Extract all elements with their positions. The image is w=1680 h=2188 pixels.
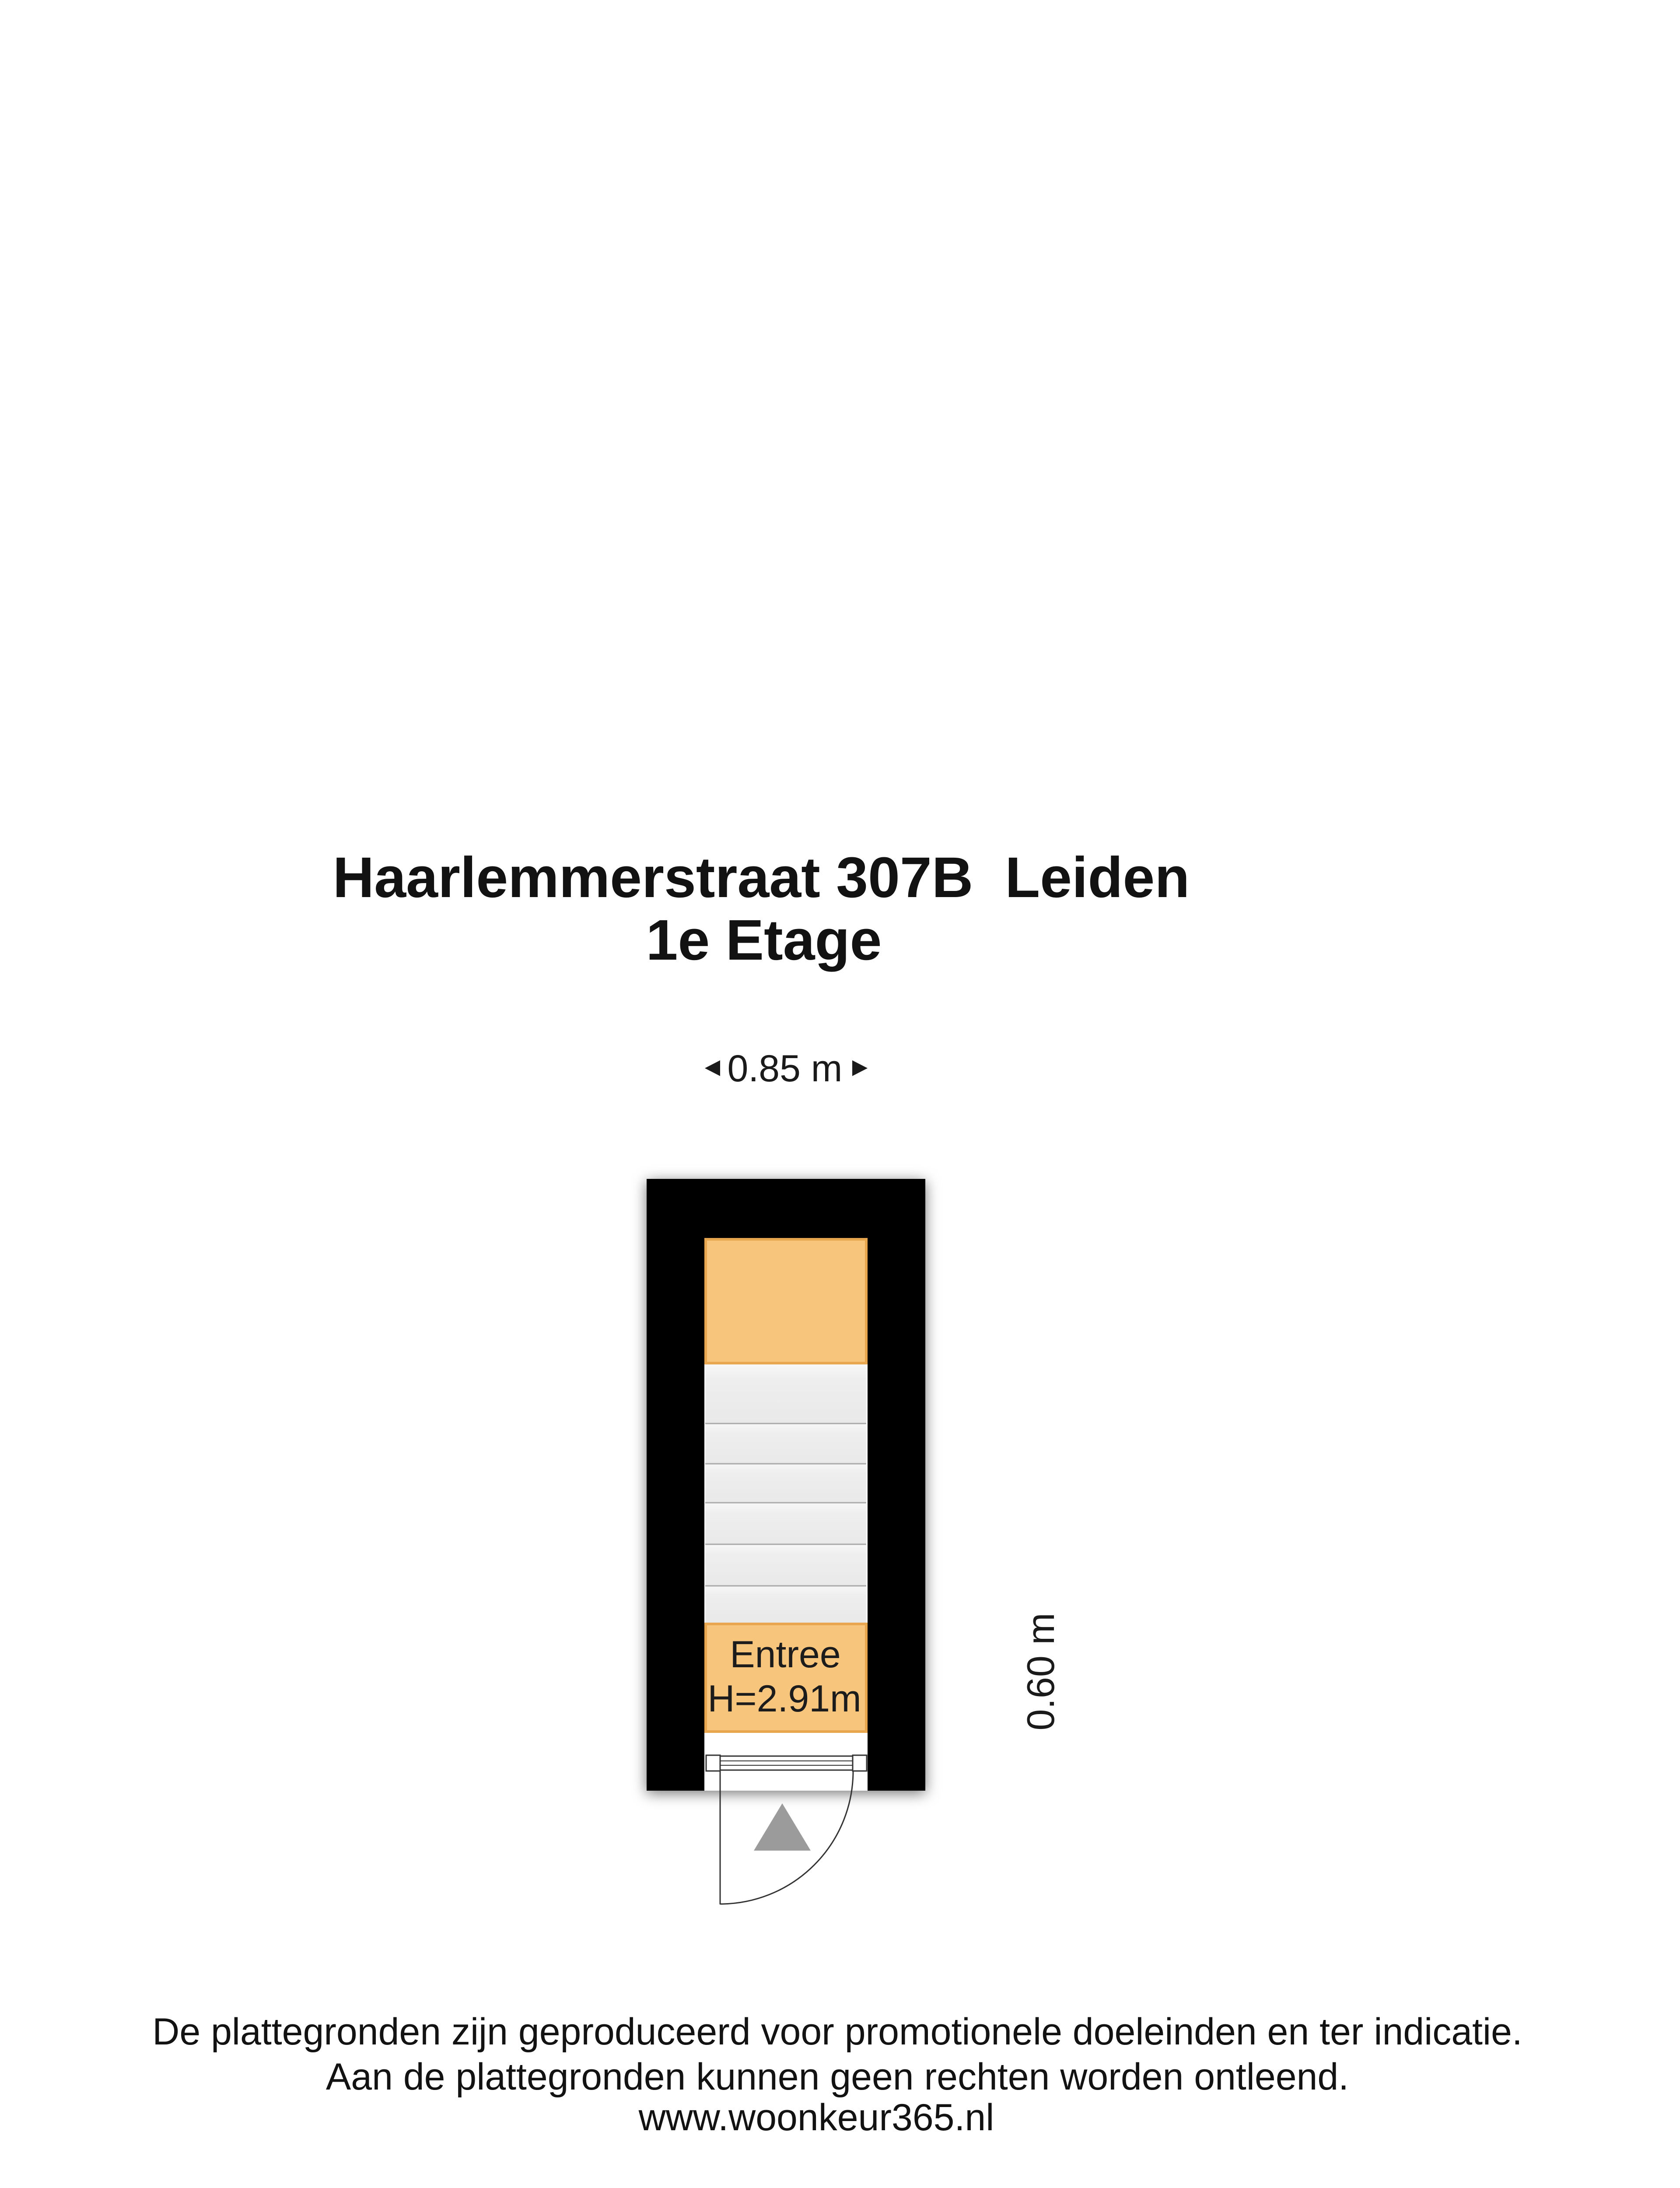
svg-text:Aan de plattegronden kunnen ge: Aan de plattegronden kunnen geen rechten… [326, 2056, 1349, 2098]
svg-text:Haarlemmerstraat 307B Leiden: Haarlemmerstraat 307B Leiden [333, 845, 1190, 909]
svg-text:Entree: Entree [730, 1634, 840, 1676]
svg-text:H=2.91m: H=2.91m [707, 1678, 861, 1720]
svg-text:De plattegronden zijn geproduc: De plattegronden zijn geproduceerd voor … [152, 2011, 1522, 2053]
svg-text:0.60 m: 0.60 m [1019, 1613, 1062, 1730]
svg-text:www.woonkeur365.nl: www.woonkeur365.nl [638, 2097, 994, 2139]
svg-text:0.85 m: 0.85 m [728, 1048, 843, 1090]
svg-text:1e Etage: 1e Etage [646, 908, 882, 972]
